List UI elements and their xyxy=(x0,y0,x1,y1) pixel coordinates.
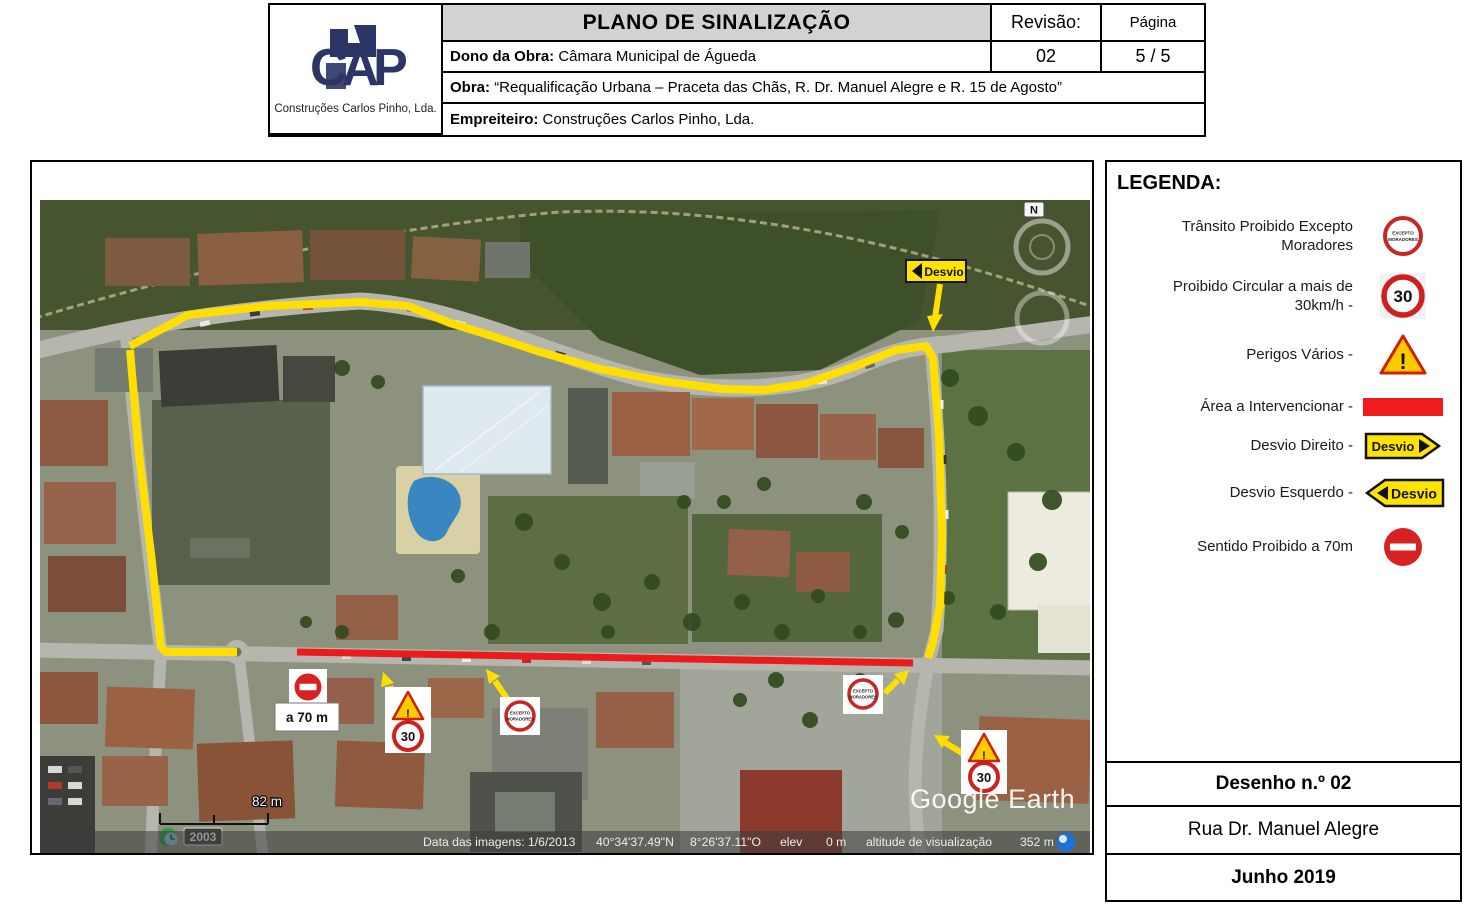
svg-text:Desvio: Desvio xyxy=(1372,439,1415,454)
cap-logo-icon: CAP xyxy=(296,23,416,101)
legend-item-transito-proibido: Trânsito Proibido Excepto Moradores EXCE… xyxy=(1113,208,1453,264)
legend-panel: LEGENDA: Trânsito Proibido Excepto Morad… xyxy=(1105,160,1462,763)
svg-text:30: 30 xyxy=(977,770,991,785)
drawing-number: Desenho n.º 02 xyxy=(1105,761,1462,807)
owner-label: Dono da Obra: xyxy=(450,48,558,65)
svg-text:EXCEPTO: EXCEPTO xyxy=(1392,231,1414,236)
page-label: Página xyxy=(1102,5,1204,42)
map-warning-30-sign-1: ! 30 xyxy=(385,687,431,753)
imagery-date: Data das imagens: 1/6/2013 xyxy=(423,835,576,849)
satellite-map: Desvio a 70 m ! 30 xyxy=(40,200,1090,853)
map-panel: Desvio a 70 m ! 30 xyxy=(30,160,1094,855)
work-row: Obra: “Requalificação Urbana – Praceta d… xyxy=(443,73,1204,104)
svg-text:MORADORES: MORADORES xyxy=(1388,237,1418,242)
warning-triangle-icon: ! xyxy=(1379,333,1427,377)
svg-text:!: ! xyxy=(982,750,986,762)
svg-text:82 m: 82 m xyxy=(252,794,282,809)
google-earth-watermark: Google Earth xyxy=(910,784,1075,814)
legend-item-area-intervencionar: Área a Intervencionar - xyxy=(1113,388,1453,426)
owner-row: Dono da Obra: Câmara Municipal de Águeda xyxy=(443,42,992,73)
legend-item-desvio-direito: Desvio Direito - Desvio xyxy=(1113,426,1453,466)
drawing-info-block: Desenho n.º 02 Rua Dr. Manuel Alegre Jun… xyxy=(1105,761,1462,902)
street-name: Rua Dr. Manuel Alegre xyxy=(1105,805,1462,855)
speed-limit-30-icon: 30 xyxy=(1380,273,1426,319)
legend-item-limite-30: Proibido Circular a mais de 30km/h - 30 xyxy=(1113,270,1453,322)
company-logo-cell: CAP Construções Carlos Pinho, Lda. xyxy=(270,5,443,135)
elevation-label: elev xyxy=(780,835,803,849)
svg-text:EXCEPTO: EXCEPTO xyxy=(510,711,531,716)
svg-text:30: 30 xyxy=(1394,287,1413,306)
legend-item-desvio-esquerdo: Desvio Esquerdo - Desvio xyxy=(1113,472,1453,514)
legend-item-sentido-proibido: Sentido Proibido a 70m xyxy=(1113,522,1453,572)
contractor-row: Empreiteiro: Construções Carlos Pinho, L… xyxy=(443,104,1204,135)
map-no-entry-sign xyxy=(289,669,327,704)
svg-text:Desvio: Desvio xyxy=(1391,486,1437,502)
detour-left-sign-icon: Desvio xyxy=(1361,478,1445,508)
plan-page: CAP Construções Carlos Pinho, Lda. PLANO… xyxy=(0,0,1480,908)
page-value: 5 / 5 xyxy=(1102,42,1204,73)
svg-text:EXCEPTO: EXCEPTO xyxy=(853,689,874,694)
map-desvio-text: Desvio xyxy=(924,265,963,279)
svg-text:MORADORES: MORADORES xyxy=(506,717,534,722)
navigation-icon xyxy=(1057,833,1076,852)
red-area-icon xyxy=(1363,398,1443,416)
owner-value: Câmara Municipal de Águeda xyxy=(558,48,756,65)
svg-text:30: 30 xyxy=(401,729,415,744)
no-entry-sign-icon xyxy=(1382,526,1424,568)
excepto-moradores-sign-icon: EXCEPTO MORADORES xyxy=(1382,215,1424,257)
map-excepto-moradores-sign-1: EXCEPTO MORADORES xyxy=(500,697,540,735)
map-distance-label: a 70 m xyxy=(275,703,339,731)
svg-text:!: ! xyxy=(1399,349,1406,374)
map-detour-left-sign: Desvio xyxy=(906,260,966,282)
revision-value: 02 xyxy=(992,42,1102,73)
svg-text:a 70 m: a 70 m xyxy=(286,710,328,725)
legend-item-perigos-varios: Perigos Vários - ! xyxy=(1113,330,1453,380)
svg-text:MORADORES: MORADORES xyxy=(849,695,877,700)
logo-letters: CAP xyxy=(310,39,406,97)
work-label: Obra: xyxy=(450,79,494,96)
compass-north-label: N xyxy=(1030,205,1038,217)
document-title: PLANO DE SINALIZAÇÃO xyxy=(443,5,992,42)
contractor-label: Empreiteiro: xyxy=(450,111,543,128)
view-altitude-value: 352 m xyxy=(1020,835,1054,849)
drawing-date: Junho 2019 xyxy=(1105,853,1462,902)
detour-right-sign-icon: Desvio xyxy=(1364,432,1442,460)
legend-title: LEGENDA: xyxy=(1117,172,1221,195)
map-excepto-moradores-sign-2: EXCEPTO MORADORES xyxy=(843,675,883,714)
contractor-value: Construções Carlos Pinho, Lda. xyxy=(543,111,755,128)
latitude-readout: 40°34'37.49"N xyxy=(596,835,674,849)
map-status-bar: Data das imagens: 1/6/2013 40°34'37.49"N… xyxy=(40,831,1090,853)
elevation-value: 0 m xyxy=(826,835,846,849)
work-value: “Requalificação Urbana – Praceta das Chã… xyxy=(494,79,1062,96)
title-block: CAP Construções Carlos Pinho, Lda. PLANO… xyxy=(268,3,1206,137)
view-altitude-label: altitude de visualização xyxy=(866,835,992,849)
svg-text:!: ! xyxy=(406,708,410,720)
longitude-readout: 8°26'37.11"O xyxy=(690,835,761,849)
company-name: Construções Carlos Pinho, Lda. xyxy=(274,103,436,115)
revision-label: Revisão: xyxy=(992,5,1102,42)
